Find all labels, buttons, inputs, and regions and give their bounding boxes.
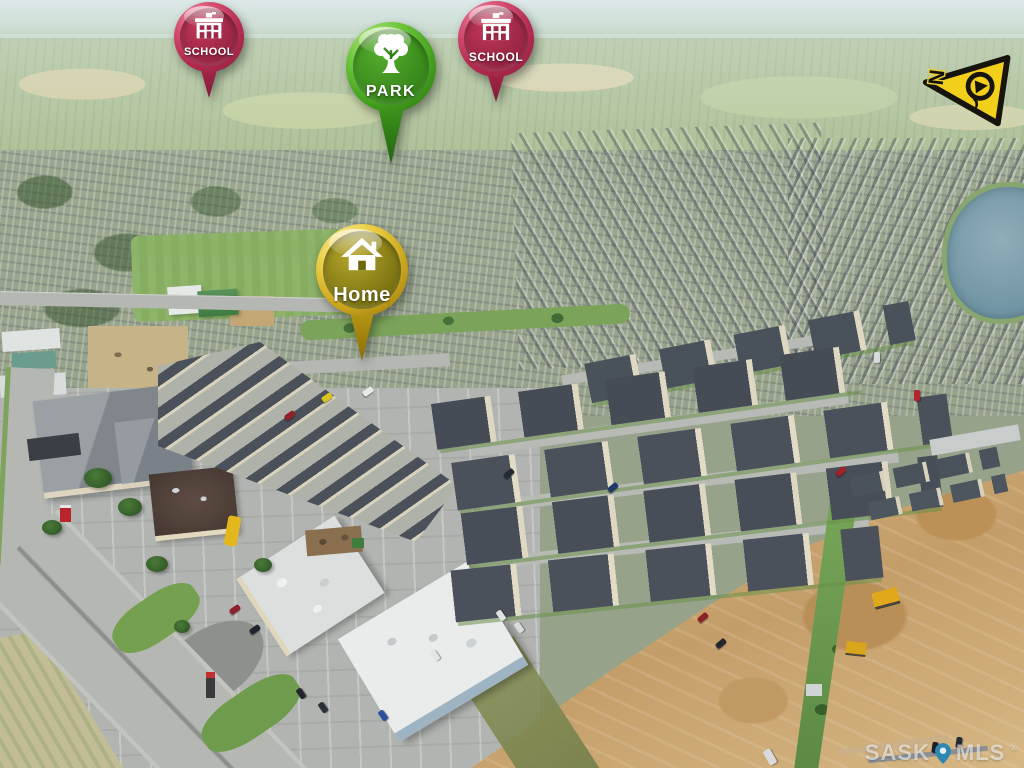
site-shed [806, 684, 822, 696]
sask-mls-watermark: SASK MLS ® [865, 740, 1018, 766]
roadside-sign [60, 505, 71, 522]
pin-gloss-highlight [469, 5, 513, 28]
watermark-sask-text: SASK [865, 740, 930, 766]
pin-balloon: Home [316, 224, 408, 316]
mls-location-pin-icon [935, 743, 951, 764]
aerial-photo: SCHOOL PARK [0, 0, 1024, 768]
pin-gloss-highlight [359, 27, 411, 54]
warehouse-building [1, 328, 60, 352]
pin-balloon: PARK [346, 22, 436, 112]
watermark-mls-text: MLS [956, 740, 1005, 766]
map-pin-school: SCHOOL [458, 1, 534, 102]
tree [174, 620, 190, 633]
tree [118, 498, 142, 516]
pin-label: SCHOOL [174, 46, 244, 58]
pin-gloss-highlight [329, 229, 382, 257]
pin-label: SCHOOL [458, 50, 534, 64]
loader-machine [845, 641, 866, 657]
map-pin-park: PARK [346, 22, 436, 164]
pin-gloss-highlight [184, 6, 225, 27]
map-pin-school: SCHOOL [174, 2, 244, 98]
tree [42, 520, 62, 535]
registered-trademark: ® [1010, 742, 1018, 752]
pin-balloon: SCHOOL [174, 2, 244, 72]
parked-car [914, 390, 920, 401]
north-arrow-icon: N [917, 46, 1024, 138]
tree [254, 558, 272, 572]
map-pin-home: Home [316, 224, 408, 361]
pin-balloon: SCHOOL [458, 1, 534, 77]
dumpster [352, 538, 364, 548]
roadside-sign [206, 672, 215, 698]
pin-label: Home [316, 284, 408, 307]
pin-label: PARK [346, 83, 436, 101]
tree [146, 556, 168, 572]
compass-north-letter: N [925, 68, 950, 86]
parked-car [874, 352, 880, 363]
tree [84, 468, 112, 488]
